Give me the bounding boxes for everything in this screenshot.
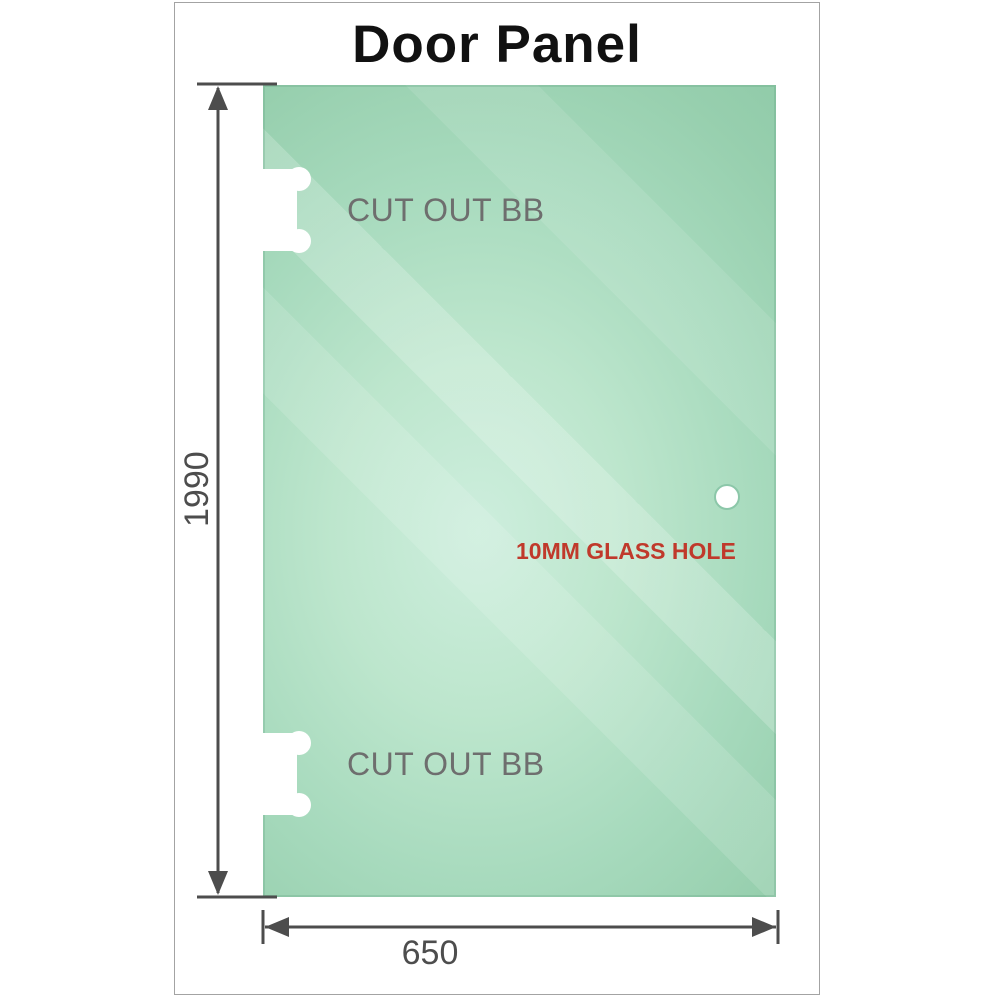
arrow-left-icon <box>265 917 289 937</box>
cutout-lobe <box>287 167 311 191</box>
width-dimension-arrow <box>255 902 790 957</box>
cutout-lobe <box>287 731 311 755</box>
hinge-cutout-bottom <box>258 724 318 824</box>
arrow-up-icon <box>208 86 228 110</box>
arrow-right-icon <box>752 917 776 937</box>
arrow-down-icon <box>208 871 228 895</box>
cutout-label-top: CUT OUT BB <box>347 192 545 228</box>
cutout-label-bottom: CUT OUT BB <box>347 746 545 782</box>
page-title: Door Panel <box>174 14 820 76</box>
cutout-lobe <box>287 793 311 817</box>
width-dimension-label: 650 <box>398 934 462 972</box>
hinge-cutout-top <box>258 160 318 260</box>
door-panel-diagram: Door Panel 1990 650 CUT OUT BB CUT OUT B… <box>0 0 1000 1000</box>
glass-hole-label: 10MM GLASS HOLE <box>516 537 736 565</box>
cutout-lobe <box>287 229 311 253</box>
glass-hole <box>714 484 740 510</box>
height-dimension-label: 1990 <box>179 455 215 527</box>
